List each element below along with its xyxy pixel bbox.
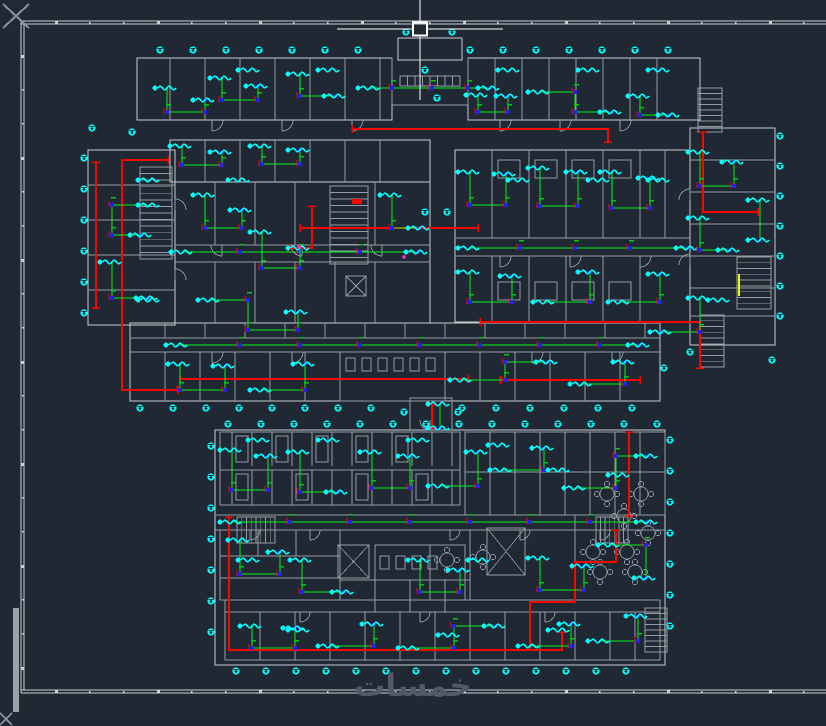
fan-hub-dot[interactable] bbox=[288, 558, 293, 563]
fan-hub-dot[interactable] bbox=[492, 172, 497, 177]
circuit-label-mark[interactable] bbox=[477, 478, 482, 480]
circuit-label-mark[interactable] bbox=[299, 260, 304, 262]
fan-hub-dot[interactable] bbox=[98, 260, 103, 265]
fan-hub-dot[interactable] bbox=[226, 538, 231, 543]
wire-green-branch[interactable] bbox=[700, 152, 734, 186]
fan-hub-dot[interactable] bbox=[286, 148, 291, 153]
chair-symbol[interactable] bbox=[594, 491, 599, 496]
fan-hub-dot[interactable] bbox=[316, 68, 321, 73]
fan-hub-dot[interactable] bbox=[526, 556, 531, 561]
circuit-label-mark[interactable] bbox=[615, 480, 620, 482]
circuit-label-mark[interactable] bbox=[611, 200, 616, 202]
chair-symbol[interactable] bbox=[604, 481, 609, 486]
junction-node[interactable] bbox=[614, 486, 618, 490]
junction-node[interactable] bbox=[223, 388, 227, 392]
circuit-label-mark[interactable] bbox=[373, 638, 378, 640]
ceiling-fan-symbol[interactable] bbox=[291, 148, 309, 152]
fan-hub-dot[interactable] bbox=[606, 300, 611, 305]
fan-hub-dot[interactable] bbox=[136, 178, 141, 183]
circuit-label-mark[interactable] bbox=[479, 337, 484, 339]
fan-hub-dot[interactable] bbox=[360, 622, 365, 627]
fan-hub-dot[interactable] bbox=[406, 558, 411, 563]
fan-hub-dot[interactable] bbox=[238, 624, 243, 629]
circuit-label-mark[interactable] bbox=[181, 157, 186, 159]
fan-hub-dot[interactable] bbox=[456, 170, 461, 175]
chair-symbol[interactable] bbox=[597, 579, 602, 584]
fan-hub-dot[interactable] bbox=[322, 94, 327, 99]
junction-node[interactable] bbox=[298, 266, 302, 270]
wire-green-branch[interactable] bbox=[470, 272, 512, 302]
wire-green-branch[interactable] bbox=[392, 195, 420, 228]
circuit-label-mark[interactable] bbox=[629, 240, 634, 242]
car-symbol[interactable] bbox=[356, 436, 368, 462]
fan-hub-dot[interactable] bbox=[378, 193, 383, 198]
circuit-label-mark[interactable] bbox=[221, 92, 226, 94]
junction-node[interactable] bbox=[510, 300, 514, 304]
circuit-label-mark[interactable] bbox=[511, 294, 516, 296]
ceiling-fan-symbol[interactable] bbox=[213, 150, 231, 154]
ceiling-fan-symbol[interactable] bbox=[363, 450, 381, 454]
junction-node[interactable] bbox=[698, 248, 702, 252]
circuit-label-mark[interactable] bbox=[257, 92, 262, 94]
junction-node[interactable] bbox=[370, 486, 374, 490]
circuit-label-mark[interactable] bbox=[504, 372, 509, 374]
fan-hub-dot[interactable] bbox=[236, 558, 241, 563]
ceiling-fan-symbol[interactable] bbox=[171, 362, 189, 366]
circuit-label-mark[interactable] bbox=[304, 382, 309, 384]
chair-symbol[interactable] bbox=[638, 501, 643, 506]
ceiling-fan-symbol[interactable] bbox=[241, 558, 259, 562]
ceiling-fan-symbol[interactable] bbox=[562, 622, 580, 626]
circuit-label-mark[interactable] bbox=[419, 584, 424, 586]
ceiling-fan-symbol[interactable] bbox=[691, 216, 709, 220]
fan-hub-dot[interactable] bbox=[236, 68, 241, 73]
chair-symbol[interactable] bbox=[604, 501, 609, 506]
circuit-label-mark[interactable] bbox=[639, 107, 644, 109]
chair-symbol[interactable] bbox=[634, 549, 639, 554]
circuit-label-mark[interactable] bbox=[539, 582, 544, 584]
fan-hub-dot[interactable] bbox=[746, 198, 751, 203]
toilet-fixture[interactable] bbox=[380, 556, 389, 569]
fan-hub-dot[interactable] bbox=[562, 486, 567, 491]
junction-node[interactable] bbox=[538, 588, 542, 592]
car-symbol[interactable] bbox=[236, 474, 248, 500]
junction-node[interactable] bbox=[588, 520, 592, 524]
ceiling-fan-symbol[interactable] bbox=[497, 172, 515, 176]
junction-node[interactable] bbox=[582, 588, 586, 592]
magenta-marker[interactable] bbox=[402, 255, 406, 259]
ceiling-fan-symbol[interactable] bbox=[603, 170, 621, 174]
junction-node[interactable] bbox=[573, 246, 577, 250]
fan-hub-dot[interactable] bbox=[316, 644, 321, 649]
fan-hub-dot[interactable] bbox=[196, 298, 201, 303]
fan-hub-dot[interactable] bbox=[128, 233, 133, 238]
chair-symbol[interactable] bbox=[642, 569, 647, 574]
ceiling-fan-symbol[interactable] bbox=[501, 68, 519, 72]
fan-hub-dot[interactable] bbox=[626, 343, 631, 348]
circuit-label-mark[interactable] bbox=[204, 104, 209, 106]
junction-node[interactable] bbox=[348, 520, 352, 524]
ceiling-fan-symbol[interactable] bbox=[551, 628, 569, 632]
ceiling-fan-symbol[interactable] bbox=[751, 238, 769, 242]
fan-hub-dot[interactable] bbox=[530, 446, 535, 451]
junction-node[interactable] bbox=[298, 343, 302, 347]
junction-node[interactable] bbox=[452, 624, 456, 628]
circuit-label-mark[interactable] bbox=[699, 178, 704, 180]
chair-symbol[interactable] bbox=[621, 523, 626, 528]
fan-hub-dot[interactable] bbox=[636, 176, 641, 181]
ceiling-fan-symbol[interactable] bbox=[253, 230, 271, 234]
fan-hub-dot[interactable] bbox=[564, 170, 569, 175]
wire-green-branch[interactable] bbox=[470, 172, 506, 205]
wire-green-branch[interactable] bbox=[700, 218, 730, 250]
ceiling-fan-symbol[interactable] bbox=[471, 558, 489, 562]
fan-hub-dot[interactable] bbox=[436, 633, 441, 638]
ceiling-fan-symbol[interactable] bbox=[223, 448, 241, 452]
ceiling-fan-symbol[interactable] bbox=[531, 556, 549, 560]
table-symbol[interactable] bbox=[600, 487, 614, 501]
junction-node[interactable] bbox=[528, 520, 532, 524]
fan-hub-dot[interactable] bbox=[496, 68, 501, 73]
circuit-label-mark[interactable] bbox=[589, 294, 594, 296]
wire-green-branch[interactable] bbox=[205, 195, 242, 228]
magenta-marker[interactable] bbox=[297, 245, 301, 249]
junction-node[interactable] bbox=[732, 184, 736, 188]
fan-hub-dot[interactable] bbox=[164, 343, 169, 348]
fan-hub-dot[interactable] bbox=[426, 484, 431, 489]
wire-green-branch[interactable] bbox=[462, 362, 548, 380]
fan-hub-dot[interactable] bbox=[426, 402, 431, 407]
junction-node[interactable] bbox=[238, 572, 242, 576]
circuit-label-mark[interactable] bbox=[231, 482, 236, 484]
fan-hub-dot[interactable] bbox=[526, 90, 531, 95]
fan-hub-dot[interactable] bbox=[494, 94, 499, 99]
circuit-label-mark[interactable] bbox=[239, 244, 244, 246]
circuit-label-mark[interactable] bbox=[589, 514, 594, 516]
ceiling-fan-symbol[interactable] bbox=[551, 468, 569, 472]
wire-green-branch[interactable] bbox=[662, 298, 700, 332]
circuit-label-mark[interactable] bbox=[615, 448, 620, 450]
junction-node[interactable] bbox=[573, 110, 577, 114]
chair-symbol[interactable] bbox=[454, 557, 459, 562]
fan-hub-dot[interactable] bbox=[324, 490, 329, 495]
fan-hub-dot[interactable] bbox=[464, 450, 469, 455]
car-symbol[interactable] bbox=[356, 474, 368, 500]
wire-green-branch[interactable] bbox=[530, 624, 571, 646]
toilet-fixture[interactable] bbox=[396, 556, 405, 569]
ceiling-fan-symbol[interactable] bbox=[251, 438, 269, 442]
fan-hub-dot[interactable] bbox=[406, 438, 411, 443]
junction-node[interactable] bbox=[476, 484, 480, 488]
fan-hub-dot[interactable] bbox=[246, 438, 251, 443]
door-arc[interactable] bbox=[420, 612, 430, 622]
junction-node[interactable] bbox=[468, 520, 472, 524]
circuit-label-mark[interactable] bbox=[733, 178, 738, 180]
circuit-label-mark[interactable] bbox=[469, 514, 474, 516]
ceiling-fan-symbol[interactable] bbox=[249, 84, 267, 88]
circuit-label-mark[interactable] bbox=[371, 480, 376, 482]
junction-node[interactable] bbox=[466, 86, 470, 90]
fan-hub-dot[interactable] bbox=[291, 362, 296, 367]
fan-hub-dot[interactable] bbox=[716, 248, 721, 253]
ceiling-fan-symbol[interactable] bbox=[611, 473, 629, 477]
door-arc[interactable] bbox=[282, 120, 293, 131]
junction-node[interactable] bbox=[538, 343, 542, 347]
chair-symbol[interactable] bbox=[624, 539, 629, 544]
door-arc[interactable] bbox=[620, 120, 631, 131]
chair-symbol[interactable] bbox=[587, 569, 592, 574]
wire-green-branch[interactable] bbox=[240, 540, 280, 574]
junction-node[interactable] bbox=[240, 226, 244, 230]
junction-node[interactable] bbox=[266, 488, 270, 492]
ceiling-fan-symbol[interactable] bbox=[241, 68, 259, 72]
circuit-label-mark[interactable] bbox=[247, 292, 252, 294]
circuit-label-mark[interactable] bbox=[239, 337, 244, 339]
wall-outline[interactable] bbox=[498, 160, 520, 178]
ceiling-fan-symbol[interactable] bbox=[259, 454, 277, 458]
fan-hub-dot[interactable] bbox=[356, 86, 361, 91]
circuit-label-mark[interactable] bbox=[261, 260, 266, 262]
ceiling-fan-symbol[interactable] bbox=[503, 274, 521, 278]
wall-outline[interactable] bbox=[88, 150, 175, 325]
junction-node[interactable] bbox=[220, 163, 224, 167]
table-symbol[interactable] bbox=[634, 487, 648, 501]
junction-node[interactable] bbox=[569, 644, 573, 648]
chair-symbol[interactable] bbox=[638, 481, 643, 486]
circuit-label-mark[interactable] bbox=[419, 337, 424, 339]
ceiling-fan-symbol[interactable] bbox=[725, 160, 743, 164]
fan-hub-dot[interactable] bbox=[466, 558, 471, 563]
fan-hub-dot[interactable] bbox=[228, 208, 233, 213]
ceiling-fan-symbol[interactable] bbox=[411, 438, 429, 442]
junction-node[interactable] bbox=[418, 343, 422, 347]
circuit-label-mark[interactable] bbox=[504, 354, 509, 356]
junction-node[interactable] bbox=[250, 646, 254, 650]
circuit-label-mark[interactable] bbox=[289, 514, 294, 516]
wire-green-branch[interactable] bbox=[180, 364, 225, 390]
fan-hub-dot[interactable] bbox=[516, 644, 521, 649]
ceiling-fan-symbol[interactable] bbox=[451, 568, 469, 572]
circuit-label-mark[interactable] bbox=[409, 514, 414, 516]
circuit-label-mark[interactable] bbox=[299, 156, 304, 158]
fan-hub-dot[interactable] bbox=[568, 382, 573, 387]
circuit-label-mark[interactable] bbox=[299, 337, 304, 339]
fan-hub-dot[interactable] bbox=[153, 86, 158, 91]
junction-node[interactable] bbox=[303, 388, 307, 392]
junction-node[interactable] bbox=[293, 646, 297, 650]
circuit-label-mark[interactable] bbox=[239, 566, 244, 568]
wire-green-branch[interactable] bbox=[410, 626, 496, 648]
door-arc[interactable] bbox=[545, 612, 555, 622]
fan-hub-dot[interactable] bbox=[686, 296, 691, 301]
fan-hub-dot[interactable] bbox=[498, 274, 503, 279]
wire-green-branch[interactable] bbox=[300, 74, 336, 96]
fan-hub-dot[interactable] bbox=[191, 98, 196, 103]
ceiling-fan-symbol[interactable] bbox=[401, 454, 419, 458]
wall-outline[interactable] bbox=[535, 282, 557, 300]
toilet-fixture[interactable] bbox=[410, 358, 419, 371]
fan-hub-dot[interactable] bbox=[286, 450, 291, 455]
drawing-canvas[interactable] bbox=[0, 0, 826, 726]
chair-symbol[interactable] bbox=[600, 549, 605, 554]
chair-symbol[interactable] bbox=[632, 559, 637, 564]
junction-node[interactable] bbox=[246, 298, 250, 302]
fan-hub-dot[interactable] bbox=[656, 113, 661, 118]
circuit-label-mark[interactable] bbox=[299, 244, 304, 246]
circuit-label-mark[interactable] bbox=[111, 290, 116, 292]
fan-hub-dot[interactable] bbox=[576, 68, 581, 73]
junction-node[interactable] bbox=[203, 226, 207, 230]
circuit-label-mark[interactable] bbox=[505, 197, 510, 199]
door-arc[interactable] bbox=[175, 269, 186, 280]
junction-node[interactable] bbox=[165, 110, 169, 114]
chair-symbol[interactable] bbox=[635, 530, 640, 535]
wall-outline[interactable] bbox=[572, 160, 594, 178]
chair-symbol[interactable] bbox=[621, 503, 626, 508]
junction-node[interactable] bbox=[698, 184, 702, 188]
fan-hub-dot[interactable] bbox=[674, 246, 679, 251]
fan-hub-dot[interactable] bbox=[208, 76, 213, 81]
chair-symbol[interactable] bbox=[480, 544, 485, 549]
ceiling-fan-symbol[interactable] bbox=[216, 364, 234, 368]
fan-hub-dot[interactable] bbox=[646, 272, 651, 277]
chair-symbol[interactable] bbox=[655, 530, 660, 535]
ceiling-fan-symbol[interactable] bbox=[616, 360, 634, 364]
circuit-label-mark[interactable] bbox=[539, 337, 544, 339]
wall-outline[interactable] bbox=[468, 58, 700, 120]
junction-node[interactable] bbox=[110, 233, 114, 237]
stair-outline[interactable] bbox=[700, 315, 724, 367]
table-symbol[interactable] bbox=[620, 545, 634, 559]
fan-hub-dot[interactable] bbox=[211, 364, 216, 369]
junction-node[interactable] bbox=[476, 110, 480, 114]
fan-hub-dot[interactable] bbox=[281, 626, 286, 631]
fan-hub-dot[interactable] bbox=[598, 110, 603, 115]
car-symbol[interactable] bbox=[276, 436, 288, 462]
wall-outline[interactable] bbox=[340, 352, 445, 401]
door-arc[interactable] bbox=[212, 120, 223, 131]
wire-green-branch[interactable] bbox=[182, 146, 222, 165]
junction-node[interactable] bbox=[504, 203, 508, 207]
fan-hub-dot[interactable] bbox=[596, 543, 601, 548]
fan-hub-dot[interactable] bbox=[286, 246, 291, 251]
junction-node[interactable] bbox=[278, 572, 282, 576]
fan-hub-dot[interactable] bbox=[218, 520, 223, 525]
wall-outline[interactable] bbox=[609, 282, 631, 300]
door-arc[interactable] bbox=[310, 530, 320, 540]
ceiling-fan-symbol[interactable] bbox=[103, 260, 121, 264]
fan-hub-dot[interactable] bbox=[648, 330, 653, 335]
circuit-label-mark[interactable] bbox=[301, 584, 306, 586]
ceiling-fan-symbol[interactable] bbox=[196, 193, 214, 197]
chair-symbol[interactable] bbox=[622, 569, 627, 574]
chair-symbol[interactable] bbox=[590, 539, 595, 544]
ceiling-fan-symbol[interactable] bbox=[511, 178, 529, 182]
fan-hub-dot[interactable] bbox=[570, 564, 575, 569]
junction-node[interactable] bbox=[430, 86, 434, 90]
wire-green-branch[interactable] bbox=[262, 232, 300, 268]
junction-node[interactable] bbox=[588, 300, 592, 304]
fan-hub-dot[interactable] bbox=[646, 178, 651, 183]
fan-hub-dot[interactable] bbox=[248, 144, 253, 149]
fan-hub-dot[interactable] bbox=[634, 454, 639, 459]
fan-hub-dot[interactable] bbox=[526, 166, 531, 171]
circuit-label-mark[interactable] bbox=[224, 382, 229, 384]
toilet-fixture[interactable] bbox=[378, 358, 387, 371]
fan-hub-dot[interactable] bbox=[634, 520, 639, 525]
ceiling-fan-symbol[interactable] bbox=[469, 450, 487, 454]
junction-node[interactable] bbox=[636, 639, 640, 643]
junction-node[interactable] bbox=[238, 343, 242, 347]
fan-hub-dot[interactable] bbox=[598, 170, 603, 175]
fan-hub-dot[interactable] bbox=[244, 84, 249, 89]
fan-hub-dot[interactable] bbox=[686, 216, 691, 221]
ceiling-fan-symbol[interactable] bbox=[365, 622, 383, 626]
fan-hub-dot[interactable] bbox=[546, 468, 551, 473]
toilet-fixture[interactable] bbox=[426, 358, 435, 371]
fan-hub-dot[interactable] bbox=[248, 388, 253, 393]
junction-node[interactable] bbox=[110, 203, 114, 207]
ceiling-fan-symbol[interactable] bbox=[651, 272, 669, 276]
door-arc[interactable] bbox=[300, 612, 310, 622]
junction-node[interactable] bbox=[203, 110, 207, 114]
ceiling-fan-symbol[interactable] bbox=[271, 550, 289, 554]
wire-red-feeder[interactable] bbox=[229, 517, 562, 650]
circuit-label-mark[interactable] bbox=[469, 294, 474, 296]
fan-hub-dot[interactable] bbox=[456, 246, 461, 251]
ceiling-fan-symbol[interactable] bbox=[629, 614, 647, 618]
wall-outline[interactable] bbox=[572, 282, 594, 300]
ceiling-fan-symbol[interactable] bbox=[637, 576, 655, 580]
fan-hub-dot[interactable] bbox=[606, 473, 611, 478]
ceiling-fan-symbol[interactable] bbox=[535, 446, 553, 450]
fan-hub-dot[interactable] bbox=[248, 230, 253, 235]
chair-symbol[interactable] bbox=[624, 559, 629, 564]
ceiling-fan-symbol[interactable] bbox=[173, 144, 191, 148]
ceiling-fan-symbol[interactable] bbox=[499, 94, 517, 98]
junction-node[interactable] bbox=[576, 204, 580, 208]
wire-green-branch[interactable] bbox=[262, 364, 305, 390]
fan-hub-dot[interactable] bbox=[136, 203, 141, 208]
circuit-label-mark[interactable] bbox=[645, 537, 650, 539]
ceiling-fan-symbol[interactable] bbox=[293, 558, 311, 562]
junction-node[interactable] bbox=[358, 343, 362, 347]
junction-node[interactable] bbox=[178, 388, 182, 392]
circuit-label-mark[interactable] bbox=[251, 640, 256, 642]
circuit-label-mark[interactable] bbox=[359, 244, 364, 246]
ceiling-fan-symbol[interactable] bbox=[461, 270, 479, 274]
ceiling-fan-symbol[interactable] bbox=[296, 362, 314, 366]
fan-hub-dot[interactable] bbox=[534, 360, 539, 365]
ceiling-fan-symbol[interactable] bbox=[253, 144, 271, 148]
circuit-label-mark[interactable] bbox=[467, 80, 472, 82]
junction-node[interactable] bbox=[468, 300, 472, 304]
junction-node[interactable] bbox=[623, 382, 627, 386]
circuit-label-mark[interactable] bbox=[179, 382, 184, 384]
wire-green-branch[interactable] bbox=[502, 448, 544, 470]
circuit-label-mark[interactable] bbox=[111, 227, 116, 229]
circuit-label-mark[interactable] bbox=[453, 640, 458, 642]
fan-hub-dot[interactable] bbox=[168, 144, 173, 149]
circuit-label-mark[interactable] bbox=[453, 618, 458, 620]
junction-node[interactable] bbox=[408, 486, 412, 490]
ceiling-fan-symbol[interactable] bbox=[651, 178, 669, 182]
ceiling-fan-symbol[interactable] bbox=[691, 150, 709, 154]
ceiling-fan-symbol[interactable] bbox=[441, 633, 459, 637]
chair-symbol[interactable] bbox=[444, 547, 449, 552]
circuit-label-mark[interactable] bbox=[241, 220, 246, 222]
fan-hub-dot[interactable] bbox=[632, 576, 637, 581]
